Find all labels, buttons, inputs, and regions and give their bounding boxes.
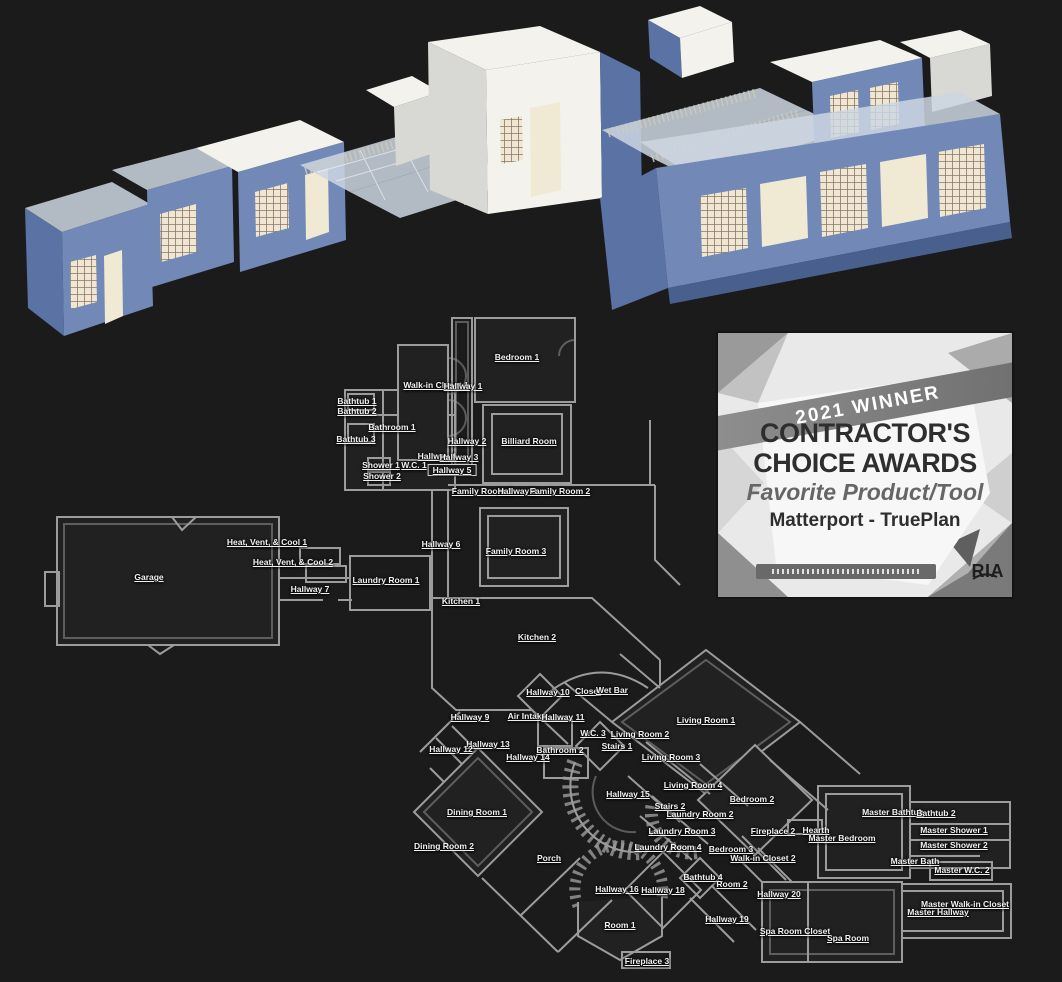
room-label-hallway-18: Hallway 18 [641, 885, 684, 895]
room-label-billiard-room: Billiard Room [501, 436, 556, 446]
ria-logo: RIA [972, 561, 1005, 582]
room-label-fireplace-2: Fireplace 2 [751, 826, 795, 836]
award-badge: 2021 WINNER CONTRACTOR'S CHOICE AWARDS F… [718, 333, 1012, 597]
room-label-hallway-10: Hallway 10 [526, 687, 569, 697]
room-label-heat-vent-cool-1: Heat, Vent, & Cool 1 [227, 537, 307, 547]
room-label-kitchen-2: Kitchen 2 [518, 632, 556, 642]
room-label-shower-2: Shower 2 [363, 471, 401, 481]
badge-category: Favorite Product/Tool [718, 479, 1012, 506]
room-label-laundry-room-1: Laundry Room 1 [352, 575, 419, 585]
room-label-porch: Porch [537, 853, 561, 863]
room-label-family-room-2: Family Room 2 [530, 486, 590, 496]
room-label-hallway-2: Hallway 2 [448, 436, 487, 446]
room-label-hallway-19: Hallway 19 [705, 914, 748, 924]
room-label-spa-room-closet: Spa Room Closet [760, 926, 830, 936]
room-label-wet-bar: Wet Bar [596, 685, 628, 695]
room-label-bathtub-1: Bathtub 1 [337, 396, 376, 406]
room-label-walk-in-closet-2: Walk-in Closet 2 [730, 853, 795, 863]
award-badge-tile: 2021 WINNER CONTRACTOR'S CHOICE AWARDS F… [716, 331, 1014, 599]
room-label-hallway-20: Hallway 20 [757, 889, 800, 899]
room-label-hallway-14: Hallway 14 [506, 752, 549, 762]
badge-fine-print [772, 569, 920, 574]
room-label-bedroom-2: Bedroom 2 [730, 794, 774, 804]
room-label-hallway-16: Hallway 16 [595, 884, 638, 894]
room-label-fireplace-3: Fireplace 3 [625, 956, 669, 966]
room-label-living-room-3: Living Room 3 [642, 752, 701, 762]
badge-fine-print-bar [756, 564, 936, 579]
room-label-living-room-1: Living Room 1 [677, 715, 736, 725]
room-label-hallway-7: Hallway 7 [291, 584, 330, 594]
badge-title-line1: CONTRACTOR'S [718, 418, 1012, 449]
room-label-hallway-12: Hallway 12 [429, 744, 472, 754]
room-label-hallway-9: Hallway 9 [451, 712, 490, 722]
room-label-laundry-room-3: Laundry Room 3 [648, 826, 715, 836]
room-label-dining-room-2: Dining Room 2 [414, 841, 474, 851]
room-label-living-room-2: Living Room 2 [611, 729, 670, 739]
room-label-master-shower-1: Master Shower 1 [920, 825, 988, 835]
room-label-hallway-1: Hallway 1 [444, 381, 483, 391]
room-label-room-2: Room 2 [716, 879, 747, 889]
room-label-stairs-1: Stairs 1 [602, 741, 633, 751]
room-label-master-w-c-2: Master W.C. 2 [934, 865, 989, 875]
room-label-hallway-6: Hallway 6 [422, 539, 461, 549]
room-label-laundry-room-2: Laundry Room 2 [666, 809, 733, 819]
room-label-bedroom-1: Bedroom 1 [495, 352, 539, 362]
room-label-living-room-4: Living Room 4 [664, 780, 723, 790]
room-label-w-c-1: W.C. 1 [401, 460, 427, 470]
room-label-room-1: Room 1 [604, 920, 635, 930]
room-label-bathtub-2: Bathtub 2 [916, 808, 955, 818]
room-label-bathtub-3: Bathtub 3 [336, 434, 375, 444]
badge-winner-name: Matterport - TruePlan [718, 510, 1012, 532]
screenshot-stage: Bedroom 1Walk-in Closet 1Hallway 1Bathtu… [0, 0, 1062, 982]
room-label-master-bedroom: Master Bedroom [808, 833, 875, 843]
room-label-kitchen-1: Kitchen 1 [442, 596, 480, 606]
room-label-bathroom-1: Bathroom 1 [368, 422, 415, 432]
room-label-hallway-3: Hallway 3 [440, 452, 479, 462]
ria-logo-swoosh [972, 570, 998, 584]
room-label-family-room-3: Family Room 3 [486, 546, 546, 556]
room-label-w-c-3: W.C. 3 [580, 728, 606, 738]
room-label-master-shower-2: Master Shower 2 [920, 840, 988, 850]
room-label-master-bath: Master Bath [891, 856, 940, 866]
room-label-spa-room: Spa Room [827, 933, 869, 943]
room-label-hallway-13: Hallway 13 [466, 739, 509, 749]
room-label-hallway-11: Hallway 11 [541, 712, 584, 722]
room-label-bathtub-2: Bathtub 2 [337, 406, 376, 416]
badge-title-line2: CHOICE AWARDS [718, 448, 1012, 479]
room-label-hallway-5: Hallway 5 [428, 464, 477, 476]
room-label-heat-vent-cool-2: Heat, Vent, & Cool 2 [253, 557, 333, 567]
room-label-master-bathtub: Master Bathtub [862, 807, 924, 817]
room-label-garage: Garage [134, 572, 163, 582]
room-label-hallway-15: Hallway 15 [606, 789, 649, 799]
room-label-master-hallway: Master Hallway [907, 907, 968, 917]
room-label-dining-room-1: Dining Room 1 [447, 807, 507, 817]
room-label-shower-1: Shower 1 [362, 460, 400, 470]
room-label-laundry-room-4: Laundry Room 4 [634, 842, 701, 852]
